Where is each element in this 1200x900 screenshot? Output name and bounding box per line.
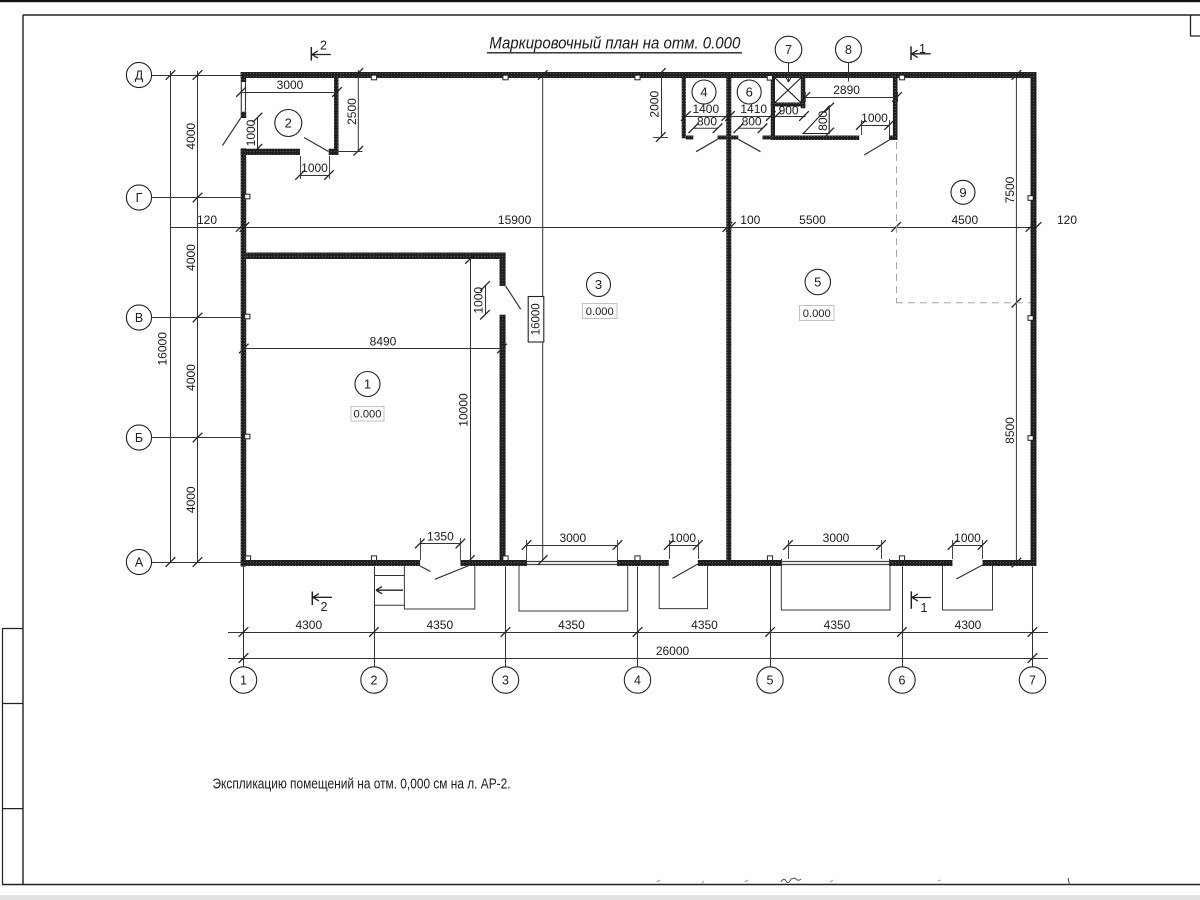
svg-text:4000: 4000 — [184, 486, 198, 513]
svg-text:4300: 4300 — [295, 618, 322, 632]
svg-text:4000: 4000 — [184, 364, 198, 391]
svg-text:1000: 1000 — [954, 531, 981, 545]
svg-text:3: 3 — [502, 673, 509, 687]
svg-text:4350: 4350 — [558, 618, 585, 632]
svg-text:2: 2 — [285, 116, 292, 131]
svg-text:100: 100 — [740, 213, 760, 227]
svg-text:3: 3 — [595, 277, 602, 292]
svg-text:4300: 4300 — [955, 618, 982, 632]
svg-text:6: 6 — [746, 85, 753, 100]
svg-text:1000: 1000 — [472, 287, 486, 314]
svg-text:1000: 1000 — [861, 111, 888, 125]
svg-text:8: 8 — [845, 43, 852, 57]
svg-text:1: 1 — [240, 673, 247, 687]
svg-text:2: 2 — [371, 673, 378, 687]
svg-text:800: 800 — [816, 110, 830, 130]
svg-text:2: 2 — [321, 600, 328, 614]
svg-text:120: 120 — [1057, 213, 1077, 227]
svg-text:1000: 1000 — [669, 531, 696, 545]
svg-text:А: А — [135, 555, 144, 569]
svg-text:8500: 8500 — [1003, 417, 1017, 444]
svg-text:800: 800 — [742, 114, 762, 128]
svg-text:2000: 2000 — [647, 91, 661, 118]
svg-text:16000: 16000 — [156, 332, 170, 366]
svg-text:900: 900 — [779, 104, 799, 118]
svg-text:9: 9 — [959, 185, 966, 200]
svg-text:1: 1 — [921, 601, 928, 615]
svg-text:Б: Б — [135, 431, 143, 445]
svg-text:7: 7 — [1029, 673, 1036, 687]
svg-text:Экспликацию помещений на отм.: Экспликацию помещений на отм. 0,000 см н… — [213, 777, 511, 793]
svg-text:10000: 10000 — [457, 393, 471, 427]
svg-text:4: 4 — [634, 673, 641, 687]
svg-text:0.000: 0.000 — [586, 306, 614, 318]
svg-text:Маркировочный план на отм. 0.0: Маркировочный план на отм. 0.000 — [489, 35, 740, 53]
svg-text:4000: 4000 — [184, 123, 198, 150]
svg-text:4350: 4350 — [691, 618, 718, 632]
svg-text:2890: 2890 — [833, 83, 860, 97]
svg-text:4: 4 — [700, 85, 707, 100]
svg-text:6: 6 — [899, 673, 906, 687]
svg-text:Д: Д — [135, 68, 144, 82]
svg-text:5: 5 — [814, 275, 821, 290]
svg-text:1350: 1350 — [427, 530, 454, 544]
svg-text:7500: 7500 — [1003, 176, 1017, 203]
svg-text:1: 1 — [364, 377, 371, 392]
svg-text:0.000: 0.000 — [803, 308, 831, 320]
svg-text:5500: 5500 — [799, 213, 826, 227]
svg-text:4350: 4350 — [824, 618, 851, 632]
svg-text:1000: 1000 — [301, 161, 328, 175]
svg-text:4000: 4000 — [184, 244, 198, 271]
svg-text:1000: 1000 — [244, 119, 258, 146]
svg-text:Г: Г — [136, 191, 143, 205]
svg-text:8490: 8490 — [370, 335, 397, 349]
svg-text:7: 7 — [785, 43, 792, 57]
svg-text:4500: 4500 — [951, 213, 978, 227]
svg-text:3000: 3000 — [277, 78, 304, 92]
svg-text:В: В — [135, 311, 143, 325]
svg-text:26000: 26000 — [656, 644, 690, 658]
svg-text:15900: 15900 — [498, 213, 532, 227]
svg-text:0.000: 0.000 — [354, 409, 382, 421]
svg-text:3000: 3000 — [559, 531, 586, 545]
svg-text:2500: 2500 — [345, 98, 359, 125]
svg-text:800: 800 — [697, 114, 717, 128]
svg-text:4350: 4350 — [426, 618, 453, 632]
svg-text:5: 5 — [767, 673, 774, 687]
svg-text:2: 2 — [320, 38, 327, 52]
svg-text:16000: 16000 — [530, 303, 542, 335]
svg-text:3000: 3000 — [823, 531, 850, 545]
svg-text:120: 120 — [197, 213, 217, 227]
svg-text:1: 1 — [919, 42, 926, 56]
